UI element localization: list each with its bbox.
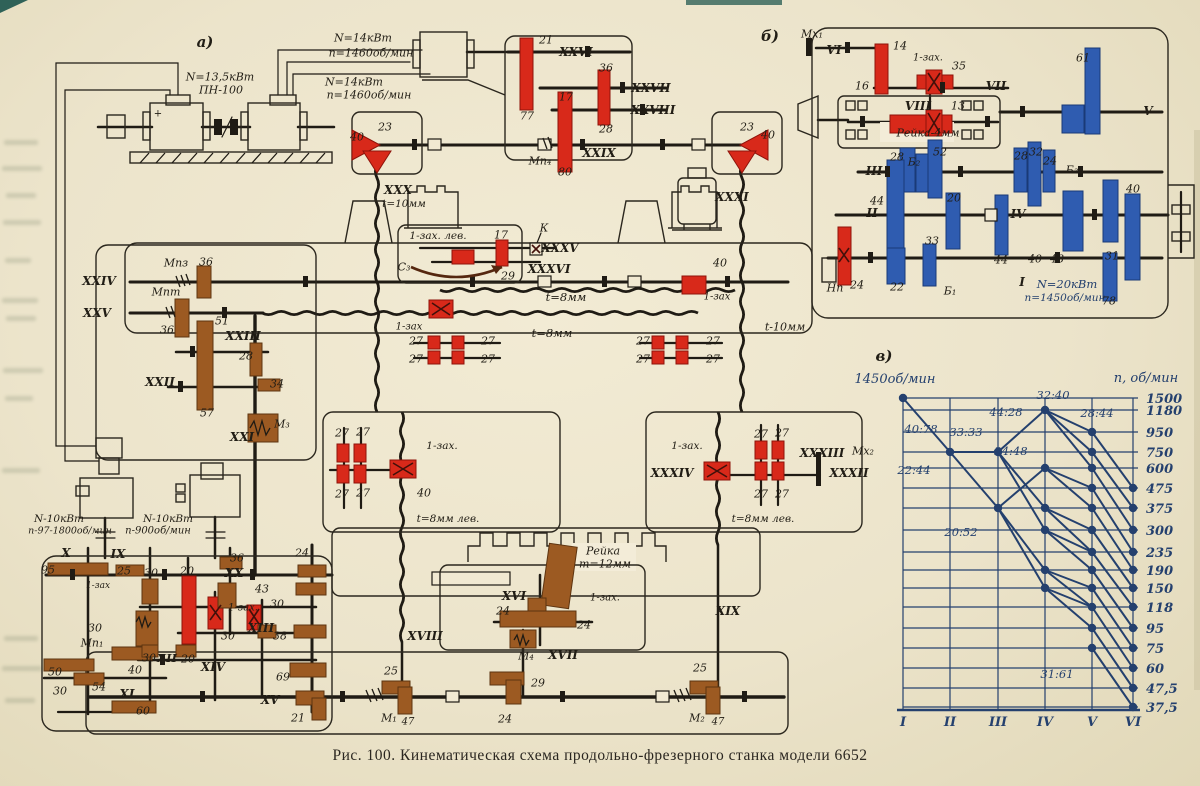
svg-text:235: 235 bbox=[1145, 546, 1173, 561]
schematic-label: m=12мм bbox=[579, 558, 631, 571]
schematic-label: XXVII bbox=[631, 81, 670, 95]
schematic-label: 24 bbox=[850, 279, 864, 292]
schematic-label: 77 bbox=[520, 110, 534, 123]
schematic-label: XXV bbox=[83, 306, 111, 320]
schematic-label: XVII bbox=[548, 648, 578, 662]
schematic-label: Рейка bbox=[586, 545, 620, 558]
schematic-label: N=13,5кВт bbox=[186, 71, 254, 84]
schematic-label: 52 bbox=[933, 146, 947, 159]
schematic-label: а) bbox=[197, 33, 214, 51]
schematic-label: 43 bbox=[255, 583, 269, 596]
schematic-label: 1-зах. bbox=[913, 53, 943, 64]
schematic-label: t=8мм лев. bbox=[417, 513, 480, 525]
schematic-label: t=8мм лев. bbox=[732, 513, 795, 525]
schematic-label: N=20кВт bbox=[1037, 277, 1098, 291]
schematic-label: 40 bbox=[417, 487, 431, 500]
figure-caption: Рис. 100. Кинематическая схема продольно… bbox=[0, 747, 1200, 765]
schematic-label: ПН-100 bbox=[199, 84, 243, 97]
schematic-label: XXXII bbox=[829, 466, 868, 480]
schematic-label: N=14кВт bbox=[325, 76, 383, 89]
schematic-label: 23 bbox=[378, 121, 392, 134]
schematic-label: 47 bbox=[712, 717, 725, 728]
schematic-label: 20 bbox=[181, 653, 195, 666]
schematic-label: 30 bbox=[142, 652, 156, 665]
schematic-label: + bbox=[154, 109, 162, 120]
speed-chart: 1500118095075060047537530023519015011895… bbox=[855, 371, 1183, 730]
schematic-label: 17 bbox=[494, 229, 508, 242]
schematic-label: t=8мм bbox=[546, 290, 587, 304]
schematic-label: XXVIII bbox=[631, 103, 676, 117]
schematic-label: Мх₁ bbox=[801, 28, 823, 41]
schematic-label: 27 bbox=[356, 426, 370, 439]
schematic-label: 27 bbox=[754, 488, 768, 501]
schematic-label: 30 bbox=[221, 630, 235, 643]
svg-text:40:78: 40:78 bbox=[903, 422, 937, 436]
svg-text:475: 475 bbox=[1146, 482, 1173, 497]
schematic-label: Б₂ bbox=[908, 156, 921, 169]
schematic-label: 27 bbox=[335, 427, 349, 440]
schematic-label: 31 bbox=[1105, 250, 1119, 263]
schematic-label: в) bbox=[876, 347, 893, 365]
kinematic-diagram: 1500118095075060047537530023519015011895… bbox=[0, 0, 1200, 786]
schematic-label: 16 bbox=[855, 80, 869, 93]
schematic-label: 24 bbox=[577, 619, 591, 632]
svg-text:I: I bbox=[899, 715, 907, 730]
schematic-label: 40 bbox=[1028, 253, 1042, 266]
schematic-label: 1-зах. bbox=[590, 593, 620, 604]
schematic-label: XXIII bbox=[225, 329, 260, 343]
schematic-label: 27 bbox=[754, 428, 768, 441]
schematic-label: I bbox=[1019, 275, 1025, 289]
svg-text:33:33: 33:33 bbox=[949, 425, 982, 439]
schematic-label: N-10кВт bbox=[143, 513, 193, 525]
schematic-label: VII bbox=[986, 79, 1007, 93]
schematic-label: XXI bbox=[230, 430, 254, 444]
schematic-label: 36 bbox=[230, 552, 244, 565]
schematic-label: 50 bbox=[48, 666, 62, 679]
schematic-label: б) bbox=[761, 27, 779, 45]
schematic-label: Мп₁ bbox=[81, 637, 104, 650]
schematic-label: 95 bbox=[41, 564, 55, 577]
schematic-label: 28 bbox=[239, 350, 253, 363]
schematic-label: XVI bbox=[502, 589, 526, 603]
schematic-label: 54 bbox=[92, 681, 106, 694]
schematic-label: XXXVI bbox=[528, 262, 571, 276]
schematic-label: XIII bbox=[248, 621, 274, 635]
schematic-label: XXXV bbox=[541, 241, 578, 255]
schematic-label: Мх₂ bbox=[852, 445, 874, 458]
svg-text:47,5: 47,5 bbox=[1146, 682, 1178, 697]
svg-text:190: 190 bbox=[1146, 564, 1173, 579]
schematic-label: 40 bbox=[128, 664, 142, 677]
svg-text:375: 375 bbox=[1146, 502, 1173, 517]
schematic-label: 48 bbox=[1050, 253, 1064, 266]
schematic-label: М₁ bbox=[381, 712, 397, 725]
schematic-label: XX bbox=[225, 566, 244, 580]
schematic-label: 61 bbox=[1076, 52, 1090, 65]
schematic-label: III bbox=[866, 164, 883, 178]
svg-text:44:28: 44:28 bbox=[988, 405, 1022, 419]
svg-text:24:48: 24:48 bbox=[993, 444, 1027, 458]
schematic-label: 1-зах bbox=[396, 322, 423, 333]
schematic-label: 21 bbox=[539, 34, 553, 47]
schematic-label: Мп₄ bbox=[529, 155, 552, 168]
schematic-label: VIII bbox=[905, 99, 931, 113]
schematic-label: 29 bbox=[531, 677, 545, 690]
schematic-label: 24 bbox=[496, 605, 510, 618]
schematic-label: 57 bbox=[200, 407, 214, 420]
schematic-label: 27 bbox=[409, 353, 423, 366]
schematic-label: К bbox=[540, 222, 549, 235]
schematic-label: 80 bbox=[558, 166, 572, 179]
schematic-label: V bbox=[1143, 104, 1152, 118]
schematic-label: 27 bbox=[775, 488, 789, 501]
schematic-label: 28 bbox=[599, 123, 613, 136]
schematic-label: XXXIII bbox=[800, 446, 845, 460]
svg-text:32:40: 32:40 bbox=[1036, 388, 1069, 402]
schematic-label: 1-зах. лев. bbox=[409, 230, 466, 242]
schematic-label: 14 bbox=[893, 40, 907, 53]
svg-text:VI: VI bbox=[1125, 715, 1142, 730]
svg-text:1450об/мин: 1450об/мин bbox=[855, 372, 936, 387]
schematic-label: 24 bbox=[498, 713, 512, 726]
schematic-label: XXXIV bbox=[651, 466, 694, 480]
schematic-label: 40 bbox=[713, 257, 727, 270]
schematic-label: Мпт bbox=[152, 286, 181, 299]
schematic-label: 21 bbox=[291, 712, 305, 725]
svg-text:20:52: 20:52 bbox=[943, 525, 977, 539]
schematic-label: N-10кВт bbox=[34, 513, 84, 525]
schematic-label: 27 bbox=[481, 353, 495, 366]
schematic-label: 1-зах bbox=[86, 581, 110, 591]
schematic-label: Б₃ bbox=[1066, 164, 1079, 177]
figure-page: 1500118095075060047537530023519015011895… bbox=[0, 0, 1200, 786]
svg-text:60: 60 bbox=[1146, 662, 1164, 677]
schematic-label: С₃ bbox=[398, 261, 411, 274]
schematic-label: 17 bbox=[559, 91, 573, 104]
schematic-label: XXX bbox=[384, 183, 412, 197]
schematic-label: 47 bbox=[402, 717, 415, 728]
schematic-label: 1-зах bbox=[704, 292, 731, 303]
schematic-label: 28 bbox=[890, 151, 904, 164]
schematic-label: 40 bbox=[350, 131, 364, 144]
schematic-label: 78 bbox=[1102, 295, 1116, 308]
schematic-label: XXXI bbox=[715, 190, 749, 204]
schematic-label: n=1460об/мин bbox=[329, 47, 414, 60]
schematic-label: 30 bbox=[53, 685, 67, 698]
schematic-label: 27 bbox=[356, 487, 370, 500]
schematic-label: 30 bbox=[88, 622, 102, 635]
svg-text:1180: 1180 bbox=[1146, 404, 1182, 419]
schematic-label: XVIII bbox=[407, 629, 442, 643]
schematic-label: 27 bbox=[775, 427, 789, 440]
schematic-label: 13 bbox=[951, 100, 965, 113]
schematic-label: 22 bbox=[890, 281, 904, 294]
schematic-label: 29 bbox=[501, 270, 515, 283]
schematic-label: 32 bbox=[1029, 146, 1043, 159]
schematic-label: XXIX bbox=[582, 146, 616, 160]
schematic-label: t-10мм bbox=[765, 321, 805, 334]
schematic-label: 35 bbox=[952, 60, 966, 73]
svg-text:300: 300 bbox=[1146, 524, 1173, 539]
schematic-label: М₄ bbox=[518, 650, 534, 663]
schematic-label: t=8мм bbox=[532, 326, 573, 340]
schematic-label: 38 bbox=[273, 630, 287, 643]
schematic-label: 25 bbox=[384, 665, 398, 678]
schematic-label: N=14кВт bbox=[334, 32, 392, 45]
schematic-label: 1-зах. bbox=[671, 440, 702, 452]
schematic-label: n=1460об/мин bbox=[327, 89, 412, 102]
schematic-label: 69 bbox=[276, 671, 290, 684]
svg-text:II: II bbox=[943, 715, 957, 730]
schematic-label: 23 bbox=[740, 121, 754, 134]
schematic-label: Б₁ bbox=[944, 285, 957, 298]
svg-text:150: 150 bbox=[1146, 582, 1173, 597]
schematic-label: 30 bbox=[270, 598, 284, 611]
schematic-label: 27 bbox=[481, 335, 495, 348]
schematic-label: XI bbox=[120, 687, 135, 701]
schematic-label: 34 bbox=[270, 378, 284, 391]
svg-text:22:44: 22:44 bbox=[896, 463, 930, 477]
schematic-label: 28 bbox=[1014, 150, 1028, 163]
schematic-label: 27 bbox=[636, 353, 650, 366]
schematic-label: IV bbox=[1011, 207, 1026, 221]
schematic-label: XV bbox=[261, 693, 280, 707]
schematic-label: VI bbox=[827, 43, 842, 57]
schematic-label: 36 bbox=[160, 324, 174, 337]
schematic-label: 24 bbox=[1043, 155, 1057, 168]
schematic-label: 33 bbox=[925, 235, 939, 248]
schematic-label: Рейка-4мм bbox=[896, 127, 959, 140]
schematic-label: 24 bbox=[295, 547, 309, 560]
schematic-label: XXIV bbox=[82, 274, 116, 288]
schematic-label: п=1450об/мин bbox=[1025, 292, 1106, 304]
schematic-label: 36 bbox=[599, 62, 613, 75]
schematic-label: 60 bbox=[136, 705, 150, 718]
schematic-label: XXII bbox=[145, 375, 175, 389]
schematic-label: 51 bbox=[215, 315, 229, 328]
svg-text:75: 75 bbox=[1146, 642, 1164, 657]
schematic-label: 27 bbox=[409, 335, 423, 348]
schematic-label: IX bbox=[111, 547, 126, 561]
schematic-label: 36 bbox=[199, 256, 213, 269]
schematic-label: X bbox=[61, 546, 70, 560]
schematic-label: п-97-1800об/мин bbox=[28, 526, 112, 537]
svg-text:750: 750 bbox=[1146, 446, 1173, 461]
svg-text:IV: IV bbox=[1036, 715, 1055, 730]
schematic-label: t=10мм bbox=[382, 198, 426, 210]
svg-text:600: 600 bbox=[1146, 462, 1173, 477]
svg-text:V: V bbox=[1087, 715, 1099, 730]
svg-text:n, об/мин: n, об/мин bbox=[1114, 371, 1179, 386]
schematic-label: 25 bbox=[693, 662, 707, 675]
schematic-label: Мпз bbox=[164, 257, 188, 270]
schematic-label: II bbox=[866, 206, 877, 220]
schematic-label: 30 bbox=[144, 567, 158, 580]
svg-text:31:61: 31:61 bbox=[1040, 667, 1073, 681]
schematic-label: М₃ bbox=[274, 418, 290, 431]
schematic-label: 27 bbox=[636, 335, 650, 348]
svg-text:28:44: 28:44 bbox=[1079, 406, 1113, 420]
schematic-label: XIV bbox=[201, 660, 225, 674]
svg-text:37,5: 37,5 bbox=[1146, 701, 1178, 716]
schematic-label: 27 bbox=[706, 335, 720, 348]
schematic-label: п-900об/мин bbox=[125, 526, 191, 537]
schematic-label: 27 bbox=[335, 488, 349, 501]
schematic-label: 27 bbox=[706, 353, 720, 366]
schematic-label: Нп bbox=[827, 282, 844, 295]
svg-text:95: 95 bbox=[1146, 622, 1164, 637]
svg-text:950: 950 bbox=[1146, 426, 1173, 441]
schematic-label: 1-зах. bbox=[426, 440, 457, 452]
svg-text:118: 118 bbox=[1146, 601, 1173, 616]
schematic-label: 25 bbox=[117, 565, 131, 578]
schematic-label: 20 bbox=[947, 192, 961, 205]
schematic-label: XXVI bbox=[559, 45, 593, 59]
schematic-label: 1-зах. bbox=[228, 603, 258, 614]
svg-text:III: III bbox=[988, 715, 1008, 730]
schematic-label: 40 bbox=[761, 129, 775, 142]
schematic-label: XII bbox=[157, 651, 177, 665]
schematic-label: 40 bbox=[1126, 183, 1140, 196]
schematic-label: 20 bbox=[180, 565, 194, 578]
schematic-label: 44 bbox=[994, 254, 1008, 267]
schematic-label: XIX bbox=[716, 604, 740, 618]
schematic-label: М₂ bbox=[689, 712, 705, 725]
